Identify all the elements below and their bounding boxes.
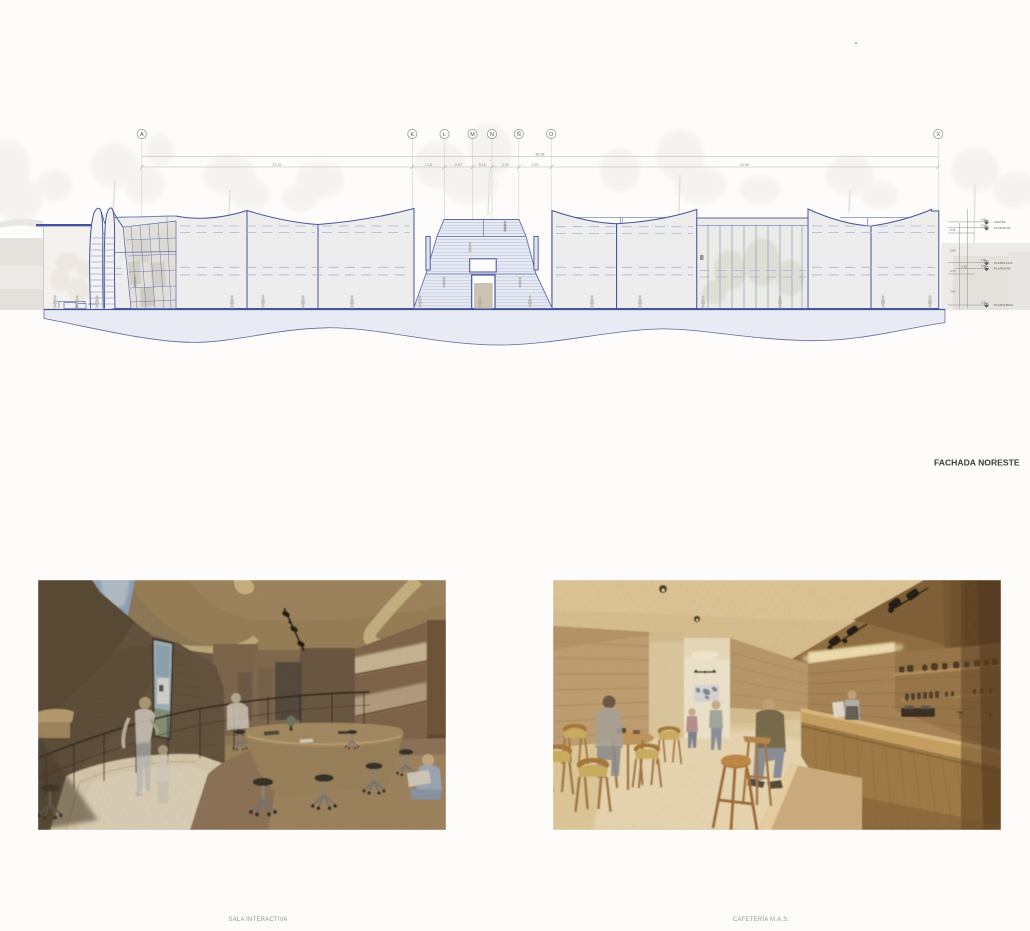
svg-text:- AZOTEA: - AZOTEA <box>993 220 1006 224</box>
svg-text:0.00: 0.00 <box>981 302 986 305</box>
svg-text:2.50: 2.50 <box>981 265 986 268</box>
svg-text:3.80: 3.80 <box>950 249 956 253</box>
svg-text:86.38: 86.38 <box>536 152 545 156</box>
svg-text:CAFETERÍA M.A.S.: CAFETERÍA M.A.S. <box>733 916 789 923</box>
svg-text:O: O <box>549 132 553 138</box>
svg-text:41.80: 41.80 <box>740 163 749 167</box>
svg-text:A: A <box>140 132 144 138</box>
svg-text:- PLANTA ALTA: - PLANTA ALTA <box>993 261 1013 265</box>
svg-text:N: N <box>490 132 494 138</box>
svg-text:- PLANTA BAJA: - PLANTA BAJA <box>993 303 1014 307</box>
svg-text:5.16: 5.16 <box>479 163 486 167</box>
svg-text:2.39: 2.39 <box>502 163 509 167</box>
svg-text:- PLAFON PA: - PLAFON PA <box>993 226 1011 230</box>
svg-text:L: L <box>443 132 446 138</box>
svg-text:SALA INTERACTIVA: SALA INTERACTIVA <box>229 917 288 923</box>
svg-text:M: M <box>470 132 475 138</box>
svg-text:- PLAFON PB: - PLAFON PB <box>993 267 1011 271</box>
svg-text:X: X <box>936 132 940 138</box>
svg-text:0.70: 0.70 <box>950 228 956 232</box>
svg-text:2.80: 2.80 <box>981 259 986 262</box>
svg-text:0.90: 0.90 <box>962 264 968 268</box>
svg-text:1.13: 1.13 <box>425 163 432 167</box>
svg-text:3.80: 3.80 <box>950 290 956 294</box>
svg-text:2.97: 2.97 <box>455 163 462 167</box>
svg-text:27.22: 27.22 <box>273 163 282 167</box>
svg-text:FACHADA NORESTE: FACHADA NORESTE <box>934 457 1020 467</box>
svg-text:2.80: 2.80 <box>981 218 986 221</box>
svg-text:K: K <box>410 132 414 138</box>
svg-text:2.50: 2.50 <box>981 224 986 227</box>
svg-text:Ñ: Ñ <box>517 131 521 138</box>
svg-text:3.39: 3.39 <box>532 163 539 167</box>
svg-text:0.70: 0.70 <box>950 269 956 273</box>
